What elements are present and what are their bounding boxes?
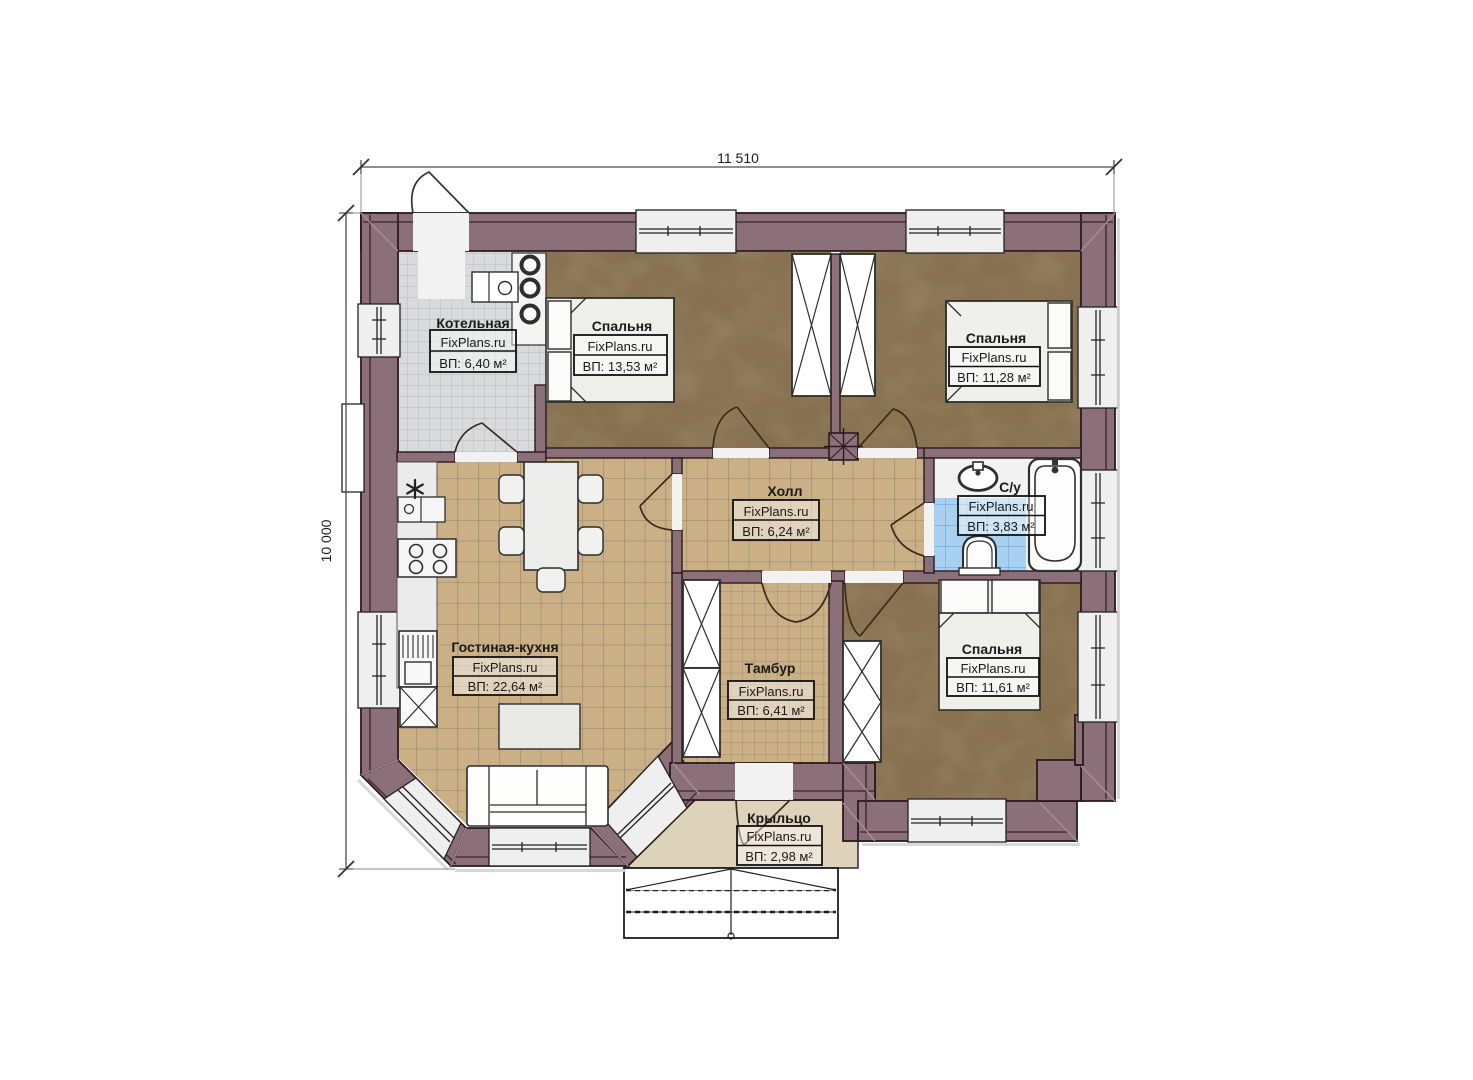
svg-text:Спальня: Спальня xyxy=(592,318,652,334)
svg-text:Котельная: Котельная xyxy=(436,315,509,331)
svg-text:ВП: 3,83 м²: ВП: 3,83 м² xyxy=(967,519,1035,534)
svg-text:FixPlans.ru: FixPlans.ru xyxy=(968,499,1033,514)
svg-text:ВП: 11,28 м²: ВП: 11,28 м² xyxy=(957,370,1031,385)
svg-text:FixPlans.ru: FixPlans.ru xyxy=(960,661,1025,676)
svg-text:Холл: Холл xyxy=(767,483,802,499)
svg-text:ВП: 6,24 м²: ВП: 6,24 м² xyxy=(742,524,810,539)
svg-text:Спальня: Спальня xyxy=(966,330,1026,346)
svg-text:FixPlans.ru: FixPlans.ru xyxy=(961,350,1026,365)
svg-text:Тамбур: Тамбур xyxy=(745,660,796,676)
svg-text:ВП: 2,98 м²: ВП: 2,98 м² xyxy=(745,849,813,864)
svg-text:FixPlans.ru: FixPlans.ru xyxy=(440,335,505,350)
svg-text:FixPlans.ru: FixPlans.ru xyxy=(738,684,803,699)
svg-text:ВП: 6,40 м²: ВП: 6,40 м² xyxy=(439,356,507,371)
svg-text:10 000: 10 000 xyxy=(318,519,334,562)
svg-text:ВП: 13,53 м²: ВП: 13,53 м² xyxy=(583,359,658,374)
svg-text:FixPlans.ru: FixPlans.ru xyxy=(587,339,652,354)
svg-text:ВП: 11,61 м²: ВП: 11,61 м² xyxy=(956,680,1030,695)
svg-text:С/у: С/у xyxy=(999,479,1021,495)
svg-text:ВП: 22,64 м²: ВП: 22,64 м² xyxy=(468,679,543,694)
svg-text:11 510: 11 510 xyxy=(717,150,759,166)
svg-text:Крыльцо: Крыльцо xyxy=(747,810,811,826)
svg-text:FixPlans.ru: FixPlans.ru xyxy=(472,660,537,675)
svg-text:FixPlans.ru: FixPlans.ru xyxy=(743,504,808,519)
svg-text:Спальня: Спальня xyxy=(962,641,1022,657)
svg-text:ВП: 6,41 м²: ВП: 6,41 м² xyxy=(737,703,805,718)
svg-text:FixPlans.ru: FixPlans.ru xyxy=(746,829,811,844)
svg-text:Гостиная-кухня: Гостиная-кухня xyxy=(451,639,558,655)
